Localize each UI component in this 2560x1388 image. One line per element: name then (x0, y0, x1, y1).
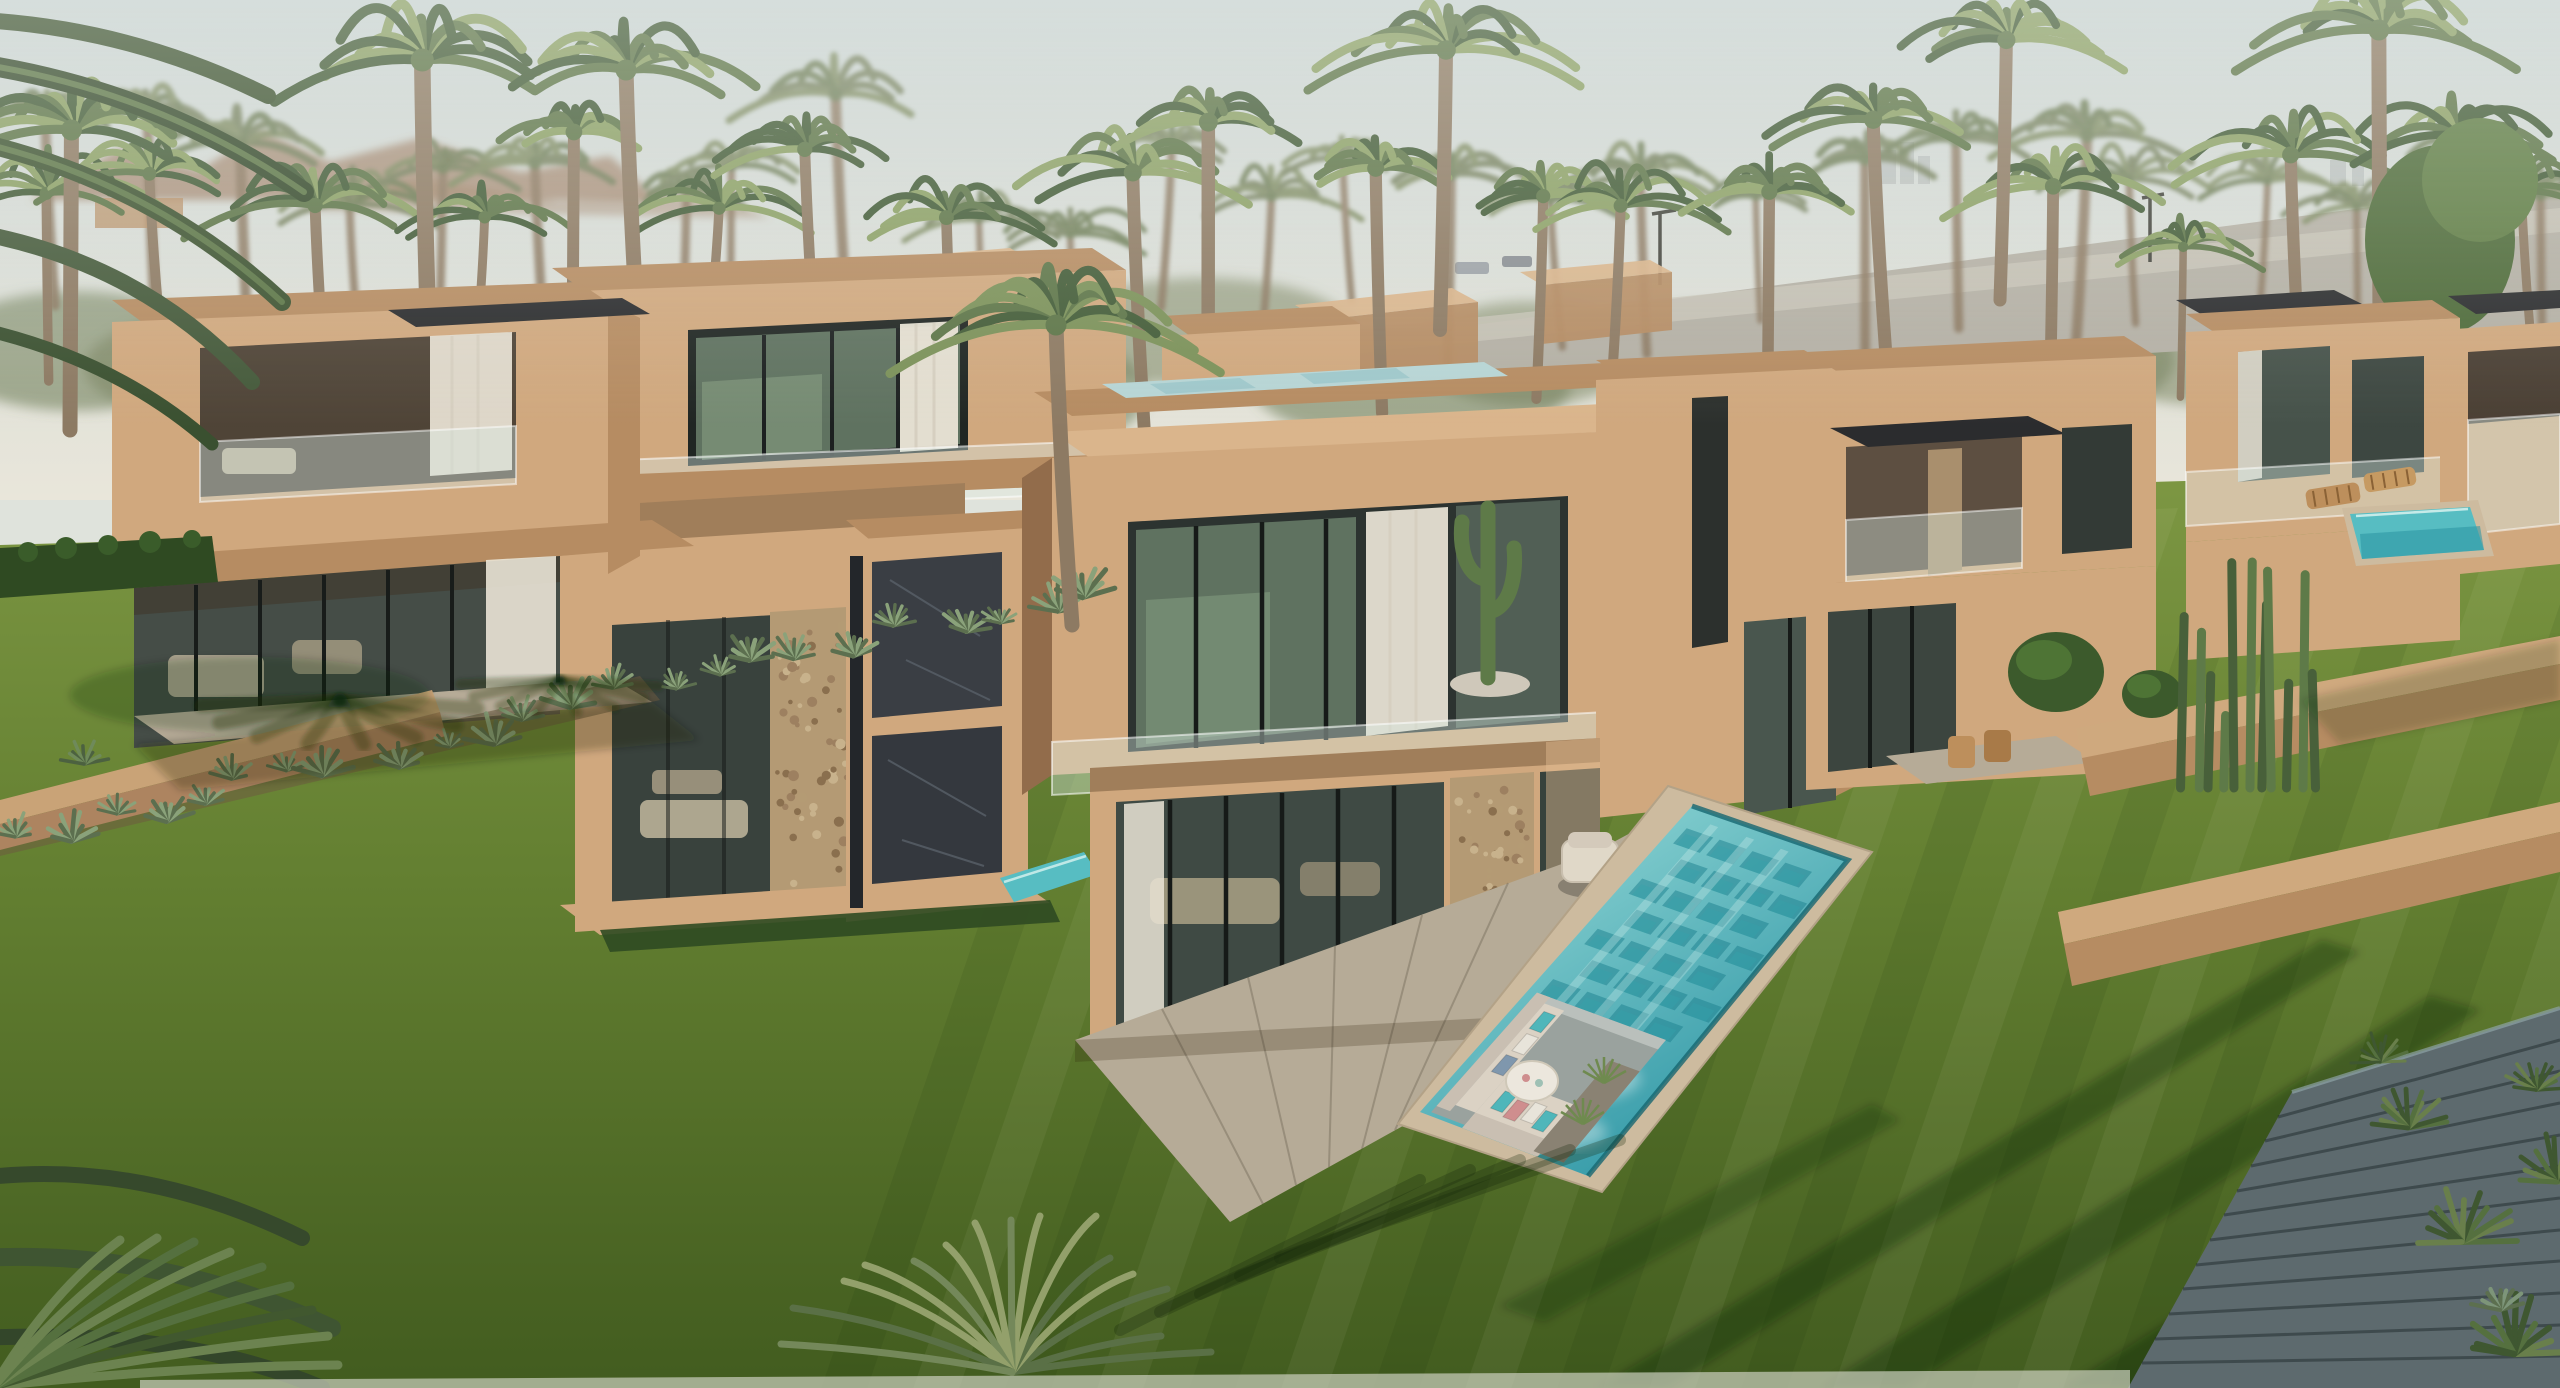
pebble (775, 770, 780, 775)
pebble (1483, 886, 1488, 891)
pebble (797, 793, 807, 803)
pebble (794, 808, 801, 815)
boxwood-highlight (2016, 640, 2072, 680)
pebble (1500, 786, 1509, 795)
pebble (1488, 799, 1493, 804)
palm-shadow (201, 700, 340, 706)
pebble (791, 789, 797, 795)
pebble (812, 830, 821, 839)
round-coffee-table (1506, 1061, 1558, 1101)
boxwood-highlight (2127, 674, 2161, 698)
pebble (799, 816, 804, 821)
entry-slate-panel (872, 726, 1002, 884)
agave-leaf (663, 687, 676, 689)
pebble (1487, 868, 1492, 873)
pebble (826, 738, 833, 745)
yucca-leaf (2520, 1180, 2556, 1182)
pebble (1454, 797, 1463, 806)
pebble (1474, 792, 1480, 798)
pebble (835, 866, 842, 873)
pebble (1517, 857, 1523, 863)
hedge-bump (55, 537, 77, 559)
pebble (789, 834, 797, 842)
mr-ground-glass (1828, 603, 1956, 772)
pebble (1483, 852, 1488, 857)
pebble (830, 767, 836, 773)
pebble (838, 657, 842, 661)
pebble (1459, 836, 1466, 843)
pebble (1518, 842, 1525, 849)
pebble (1519, 829, 1523, 833)
pebble (831, 849, 840, 858)
pebble (1516, 809, 1522, 815)
pebble (1496, 806, 1504, 814)
pebble (807, 630, 813, 636)
pebble (810, 811, 816, 817)
pebble (1524, 835, 1530, 841)
pebble (800, 676, 808, 684)
pebble (1508, 806, 1517, 815)
hedge-bump (183, 530, 201, 548)
hedge-bump (139, 531, 161, 553)
pebble (788, 770, 799, 781)
pebble (779, 708, 787, 716)
render-viewport: Aerial view of a modern desert villa com… (0, 0, 2560, 1388)
palm-shadow (460, 680, 560, 684)
table-decor (1522, 1074, 1530, 1082)
pebble (1487, 874, 1492, 879)
interior-sofa (640, 800, 748, 838)
yucca-leaf (2351, 1062, 2380, 1063)
pebble (777, 799, 785, 807)
cactus-stem (2232, 563, 2234, 788)
pebble (1467, 809, 1471, 813)
hedge-bump (18, 542, 38, 562)
pebble (809, 803, 818, 812)
pebble (1468, 836, 1472, 840)
cactus-stem (2312, 673, 2315, 788)
pebble (1515, 820, 1525, 830)
pebble (1494, 849, 1503, 858)
cactus-stem (2181, 617, 2185, 788)
pebble (1504, 830, 1510, 836)
pebble (807, 697, 817, 707)
pebble (827, 675, 835, 683)
cactus-stem (2199, 632, 2201, 788)
pebble (837, 708, 842, 713)
pebble (798, 703, 803, 708)
cactus-stem (2250, 562, 2252, 788)
entry-slate-panel (872, 552, 1002, 718)
cactus-stem (2303, 575, 2305, 788)
table-decor (1535, 1079, 1543, 1087)
pebble (787, 662, 797, 672)
hedge-bump (98, 535, 118, 555)
villa-aerial-render: Aerial view of a modern desert villa com… (0, 0, 2560, 1388)
entry-slit-window (850, 556, 863, 908)
interior-sofa (652, 770, 722, 794)
main-tower-slit-window (1692, 396, 1728, 648)
pebble (822, 686, 830, 694)
pebble (788, 700, 793, 705)
pebble (1504, 856, 1510, 862)
timber-chair (1984, 730, 2011, 762)
pebble (1470, 846, 1478, 854)
pebble (811, 718, 818, 725)
pebble (790, 880, 797, 887)
main-glass-reflection (1146, 592, 1270, 744)
pebble (1458, 820, 1462, 824)
yucca-leaf (2418, 1242, 2462, 1243)
pebble (835, 739, 845, 749)
cactus-stem (2224, 715, 2226, 788)
pebble (834, 817, 844, 827)
pebble (822, 771, 831, 780)
main-cantilever-side (1022, 458, 1052, 795)
mr-window (2062, 424, 2132, 554)
chair-back (1568, 832, 1612, 848)
pebble (1488, 807, 1497, 816)
mr-glass-railing (1846, 508, 2022, 582)
pebble (805, 726, 811, 732)
atmospheric-haze (0, 0, 2560, 430)
cactus-stem (2286, 683, 2288, 788)
cactus-stem (2268, 571, 2272, 788)
main-upper-curtain (1366, 507, 1448, 736)
pebble (795, 723, 800, 728)
cactus-stem (2208, 675, 2211, 788)
main-ground-curtain (1124, 801, 1164, 1032)
timber-chair (1948, 736, 1975, 768)
